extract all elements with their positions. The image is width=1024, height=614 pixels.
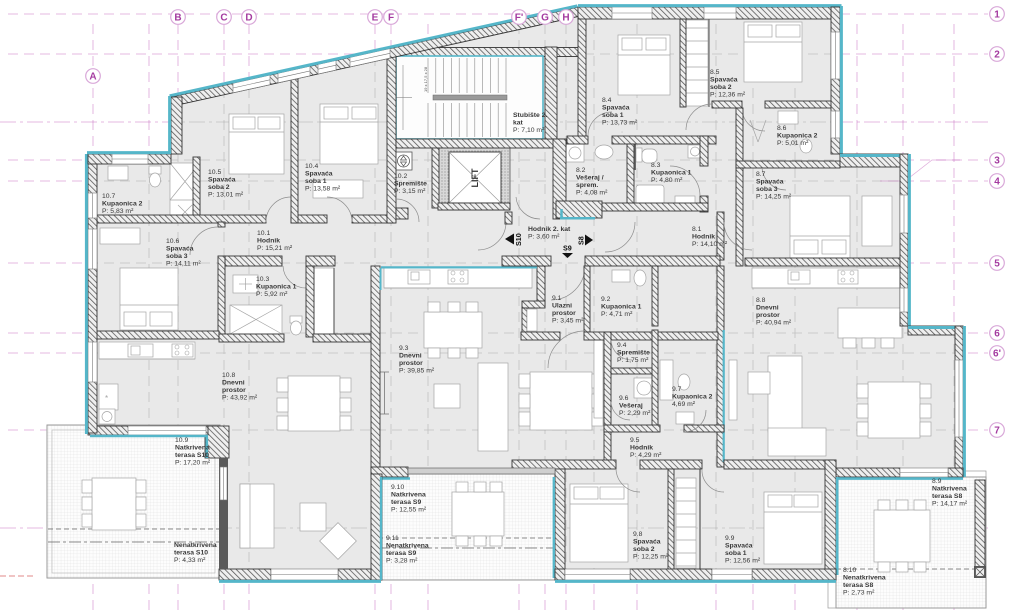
- svg-text:4: 4: [994, 176, 1000, 187]
- svg-text:2: 2: [994, 49, 1000, 60]
- svg-text:D: D: [245, 12, 252, 23]
- svg-text:5: 5: [994, 258, 1000, 269]
- svg-text:F': F': [515, 12, 524, 23]
- svg-text:S8: S8: [577, 236, 586, 245]
- svg-text:G: G: [541, 12, 549, 23]
- svg-text:6': 6': [993, 348, 1001, 359]
- svg-text:S10: S10: [514, 233, 523, 246]
- svg-text:A: A: [89, 71, 96, 82]
- svg-text:F: F: [388, 12, 394, 23]
- svg-text:B: B: [174, 12, 181, 23]
- svg-text:7: 7: [994, 425, 1000, 436]
- svg-text:3: 3: [994, 155, 1000, 166]
- svg-text:E: E: [372, 12, 379, 23]
- svg-text:*: *: [105, 394, 108, 403]
- svg-text:1: 1: [994, 9, 1000, 20]
- svg-text:S9: S9: [563, 244, 572, 253]
- svg-text:C: C: [220, 12, 227, 23]
- svg-text:19 x 17,5 x 28: 19 x 17,5 x 28: [423, 66, 428, 92]
- svg-text:H: H: [562, 12, 569, 23]
- svg-text:6: 6: [994, 328, 1000, 339]
- svg-text:LIFT: LIFT: [470, 168, 480, 187]
